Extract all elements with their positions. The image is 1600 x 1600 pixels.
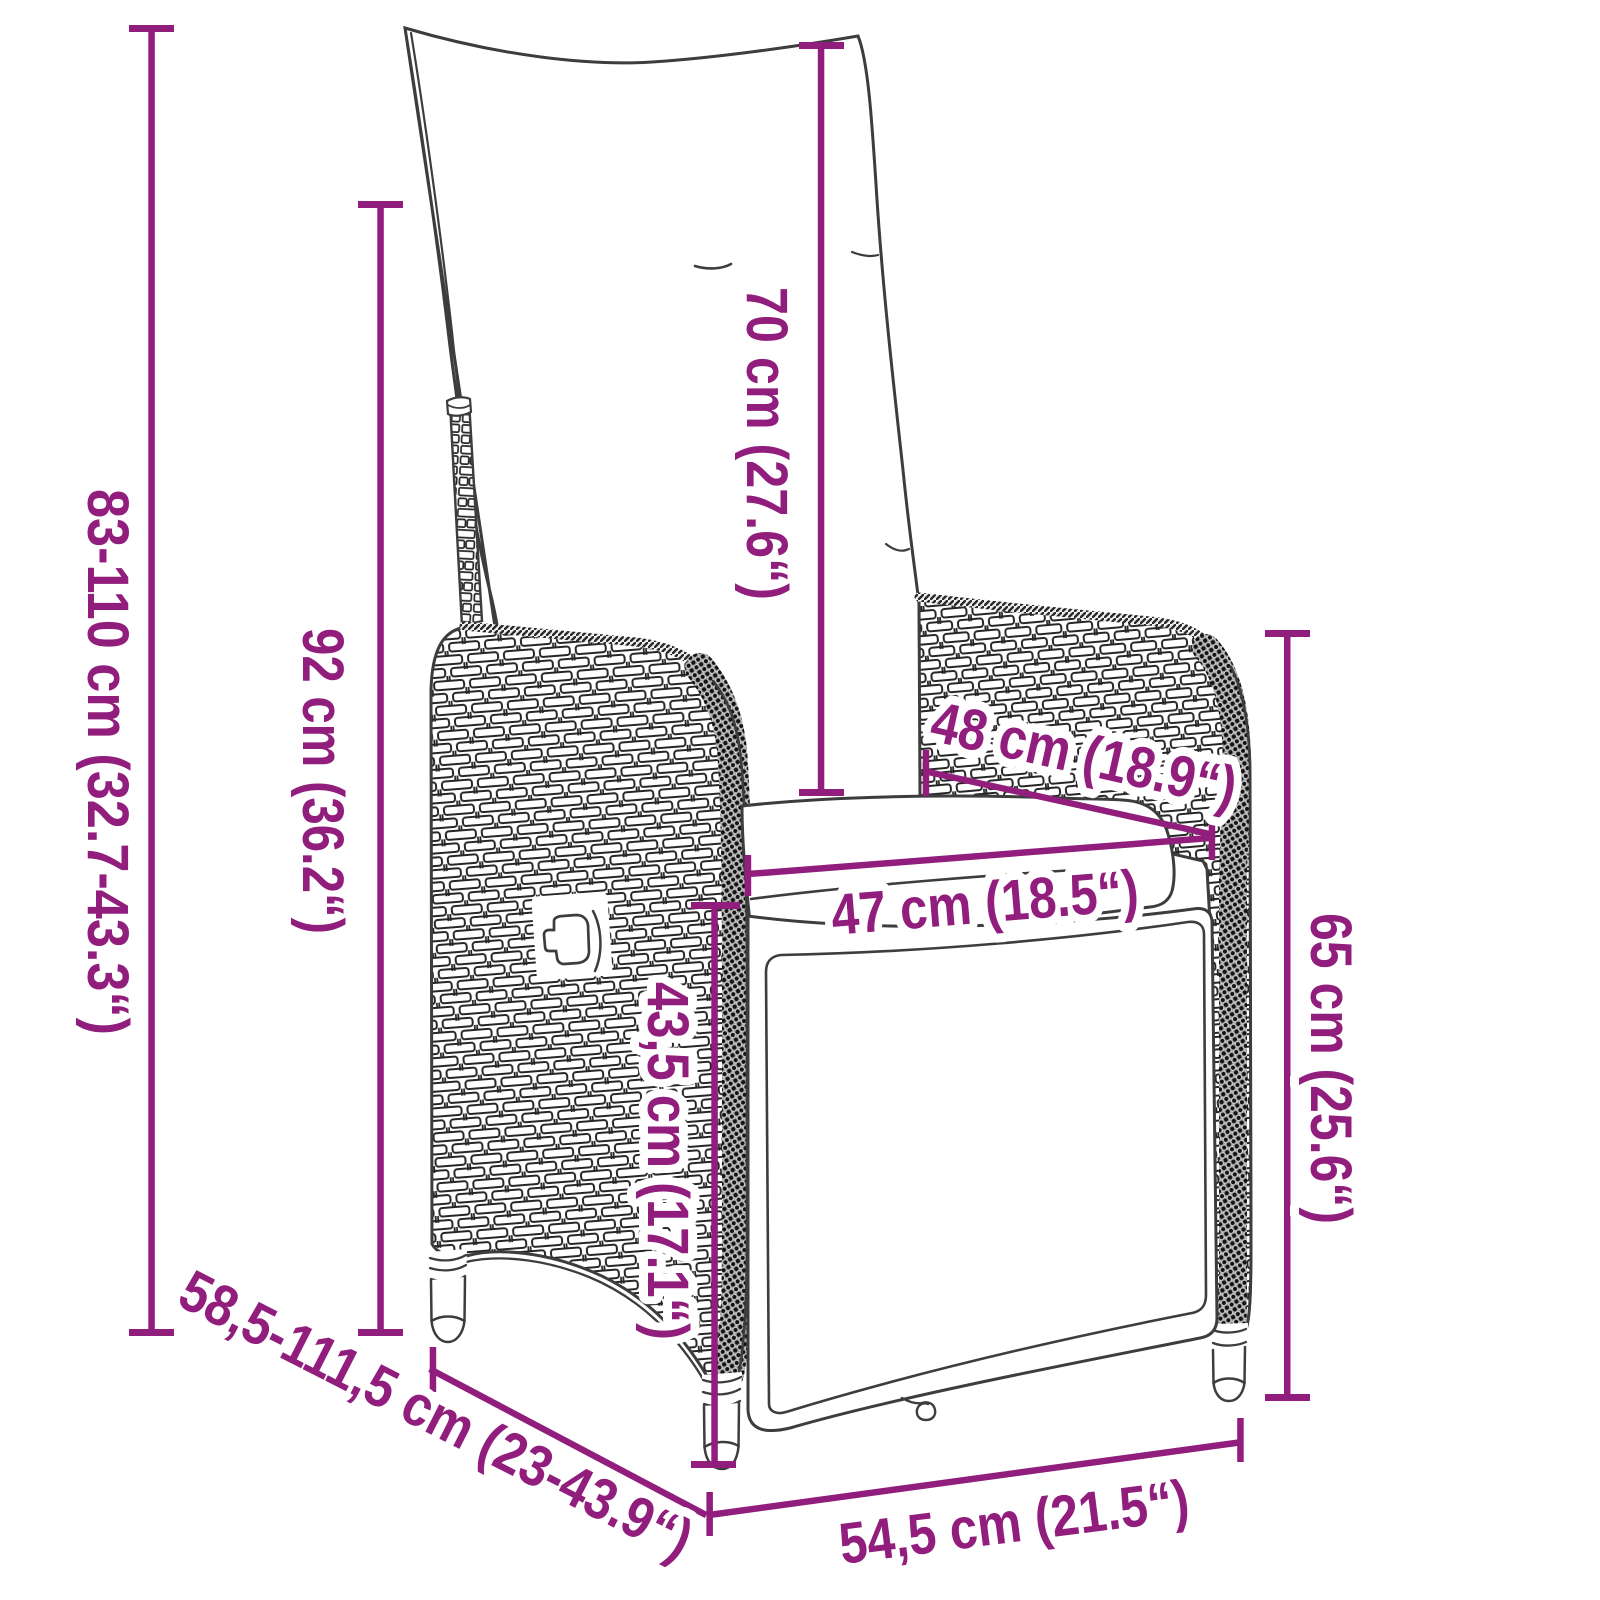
svg-text:43,5 cm (17.1“): 43,5 cm (17.1“) bbox=[635, 982, 700, 1340]
svg-text:83-110 cm (32.7-43.3“): 83-110 cm (32.7-43.3“) bbox=[75, 489, 140, 1035]
svg-text:54,5 cm (21.5“): 54,5 cm (21.5“) bbox=[835, 1468, 1192, 1577]
svg-text:70 cm (27.6“): 70 cm (27.6“) bbox=[734, 287, 799, 600]
svg-text:92 cm (36.2“): 92 cm (36.2“) bbox=[290, 628, 355, 934]
svg-text:65 cm (25.6“): 65 cm (25.6“) bbox=[1298, 913, 1363, 1224]
